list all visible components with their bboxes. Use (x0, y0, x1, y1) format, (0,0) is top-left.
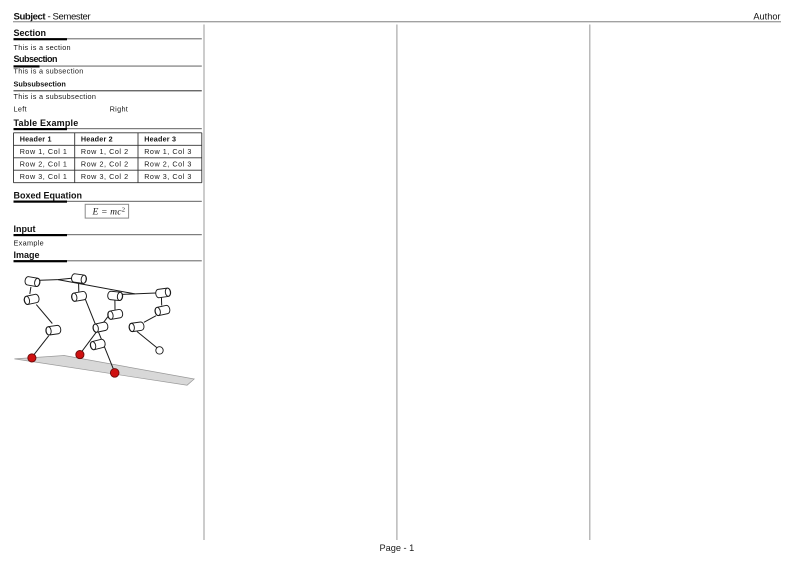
svg-text:Header 2: Header 2 (81, 135, 113, 144)
svg-text:Table Example: Table Example (14, 118, 79, 128)
svg-text:Row 1, Col 3: Row 1, Col 3 (144, 147, 192, 156)
svg-text:Header 1: Header 1 (20, 135, 52, 144)
svg-text:Header 3: Header 3 (144, 135, 176, 144)
svg-text:Right: Right (110, 105, 129, 114)
svg-text:Row 1, Col 1: Row 1, Col 1 (20, 147, 68, 156)
svg-text:Row 2, Col 1: Row 2, Col 1 (20, 160, 68, 169)
svg-text:Page - 1: Page - 1 (380, 543, 415, 553)
svg-text:Row 2, Col 2: Row 2, Col 2 (81, 160, 129, 169)
svg-text:Row 1, Col 2: Row 1, Col 2 (81, 147, 129, 156)
svg-text:Boxed Equation: Boxed Equation (14, 190, 83, 200)
svg-text:Subsubsection: Subsubsection (14, 80, 66, 89)
svg-text:Row 3, Col 2: Row 3, Col 2 (81, 172, 129, 181)
svg-text:This is a section: This is a section (14, 43, 71, 52)
svg-text:Subject - Semester: Subject - Semester (14, 12, 92, 23)
svg-text:Subsection: Subsection (14, 54, 58, 64)
svg-text:Author: Author (753, 11, 780, 21)
svg-text:Example: Example (14, 238, 45, 247)
svg-text:Left: Left (14, 105, 27, 114)
svg-text:Image: Image (14, 250, 40, 260)
svg-text:This is a subsection: This is a subsection (14, 67, 84, 76)
svg-text:Section: Section (14, 28, 47, 38)
svg-text:Row 3, Col 3: Row 3, Col 3 (144, 172, 192, 181)
svg-text:Row 3, Col 1: Row 3, Col 1 (20, 172, 68, 181)
svg-text:This is a subsubsection: This is a subsubsection (14, 92, 97, 101)
svg-text:Row 2, Col 3: Row 2, Col 3 (144, 160, 192, 169)
svg-text:Input: Input (14, 224, 36, 234)
